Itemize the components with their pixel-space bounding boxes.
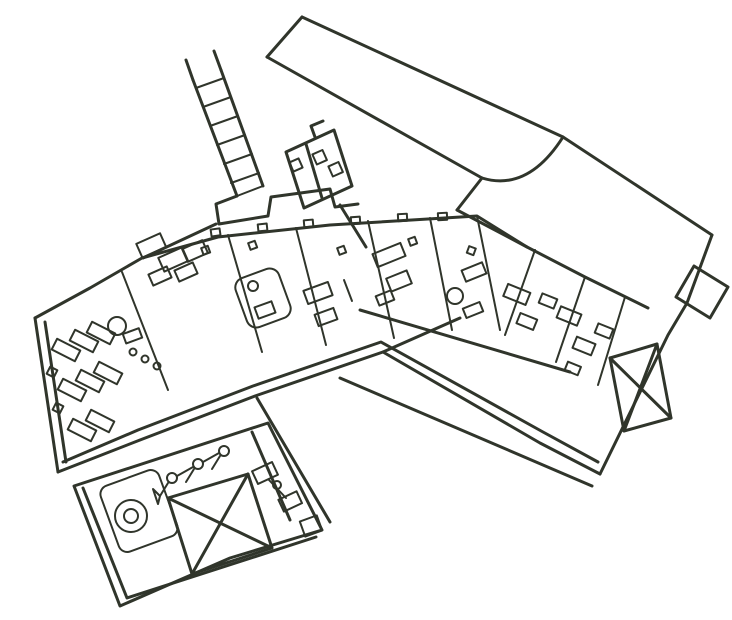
floor-plan-canvas [0,0,732,620]
floor-plan-sketch [0,0,732,620]
background [0,0,732,620]
